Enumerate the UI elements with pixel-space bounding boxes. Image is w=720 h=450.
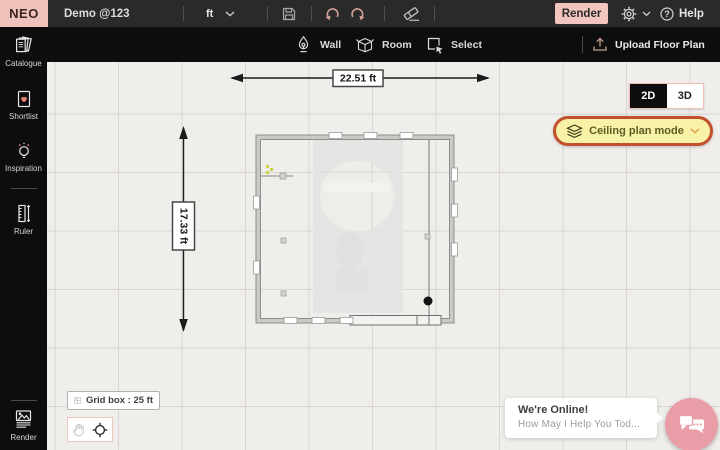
ceiling-plan-mode-dropdown[interactable]: Ceiling plan mode [553,116,713,146]
ruler-icon [14,203,34,224]
canvas-controls [67,417,113,442]
render-button[interactable]: Render [555,3,608,24]
chat-subtitle: How May I Help You Tod... [518,419,647,430]
view-2d-button[interactable]: 2D [630,84,667,108]
view-mode-toggle: 2D 3D [629,83,704,109]
sidebar-item-label: Render [10,433,36,442]
floorplan-canvas[interactable]: 22.51 ft 17.33 ft 2D 3D Ceiling plan [47,62,720,450]
grid-box-label: Grid box : 25 ft [86,395,153,406]
arrowhead-right [477,74,490,83]
topbar: NEO Demo @123 ft [0,0,720,27]
drawing-toolbar: Wall Room Select Uploa [47,27,720,62]
redo-button[interactable] [348,0,366,27]
divider [311,6,312,21]
sidebar-item-catalogue[interactable]: Catalogue [0,36,47,68]
room-label: Room [382,39,412,51]
chat-popup[interactable]: We're Online! How May I Help You Tod... [505,398,657,438]
undo-button[interactable] [324,0,342,27]
dimension-height-label: 17.33 ft [178,208,190,245]
eraser-icon [401,6,421,22]
wall-tool[interactable]: Wall [294,27,341,62]
settings-menu[interactable] [621,0,651,27]
sidebar-item-label: Catalogue [5,59,41,68]
view-3d-button[interactable]: 3D [667,84,704,108]
point-marker[interactable] [424,297,433,306]
upload-icon [592,37,608,52]
sidebar-item-label: Inspiration [5,164,42,173]
sidebar-divider [11,188,37,189]
arrowhead-up [179,126,188,139]
save-button[interactable] [282,0,296,27]
divider [384,6,385,21]
help-icon: ? [660,7,674,21]
ceiling-overlay [313,140,403,313]
catalogue-icon [13,36,34,56]
upload-label: Upload Floor Plan [615,39,705,51]
select-label: Select [451,39,482,51]
sidebar-divider [11,400,37,401]
help-label: Help [679,8,704,20]
divider [267,6,268,21]
sidebar-item-render[interactable]: Render [0,409,47,442]
hand-pan-icon[interactable] [72,422,86,437]
save-icon [282,7,296,21]
chat-title: We're Online! [518,404,647,416]
unit-select[interactable]: ft [206,0,235,27]
wall-label: Wall [320,39,341,51]
app-window: NEO Demo @123 ft [0,0,720,450]
arrowhead-left [230,74,243,83]
select-icon [426,36,444,54]
chevron-down-icon [642,11,651,17]
chat-launcher-button[interactable] [665,398,718,450]
dimension-width-label: 22.51 ft [340,72,377,84]
room-icon [355,36,375,54]
sidebar-item-label: Shortlist [9,112,38,121]
arrowhead-down [179,319,188,332]
sidebar-item-inspiration[interactable]: Inspiration [0,140,47,173]
divider [183,6,184,21]
sidebar: Catalogue Shortlist Inspiration [0,27,47,450]
counter-fixture[interactable] [350,316,441,326]
unit-label: ft [206,8,213,20]
ceiling-mode-label: Ceiling plan mode [583,125,690,137]
room-walls[interactable] [256,135,454,323]
layers-icon [566,124,583,139]
neo-logo: NEO [0,0,48,27]
shortlist-icon [14,89,34,109]
chevron-down-icon [690,128,700,134]
divider [582,36,583,53]
gear-icon [621,6,637,22]
wall-icon [294,35,313,54]
chat-bubbles-icon [678,413,706,437]
inspiration-icon [14,140,34,161]
node-markers[interactable] [280,173,430,296]
render-image-icon [13,409,34,430]
locate-icon[interactable] [92,422,108,438]
eraser-button[interactable] [401,0,421,27]
sidebar-item-label: Ruler [14,227,33,236]
room-tool[interactable]: Room [355,27,412,62]
help-button[interactable]: ? Help [660,0,704,27]
sidebar-item-shortlist[interactable]: Shortlist [0,89,47,121]
divider [434,6,435,21]
select-tool[interactable]: Select [426,27,482,62]
undo-icon [324,6,342,21]
help-glyph: ? [664,9,670,19]
dimension-vertical: 17.33 ft [173,126,195,332]
wall-handles[interactable] [254,133,458,324]
sidebar-item-ruler[interactable]: Ruler [0,203,47,236]
grid-icon [74,395,81,406]
chevron-down-icon [225,11,235,17]
grid-box-indicator: Grid box : 25 ft [67,391,160,410]
upload-floor-plan-button[interactable]: Upload Floor Plan [592,27,705,62]
redo-icon [348,6,366,21]
snap-marker [266,165,273,174]
dimension-horizontal: 22.51 ft [230,70,490,87]
document-title: Demo @123 [64,0,130,27]
